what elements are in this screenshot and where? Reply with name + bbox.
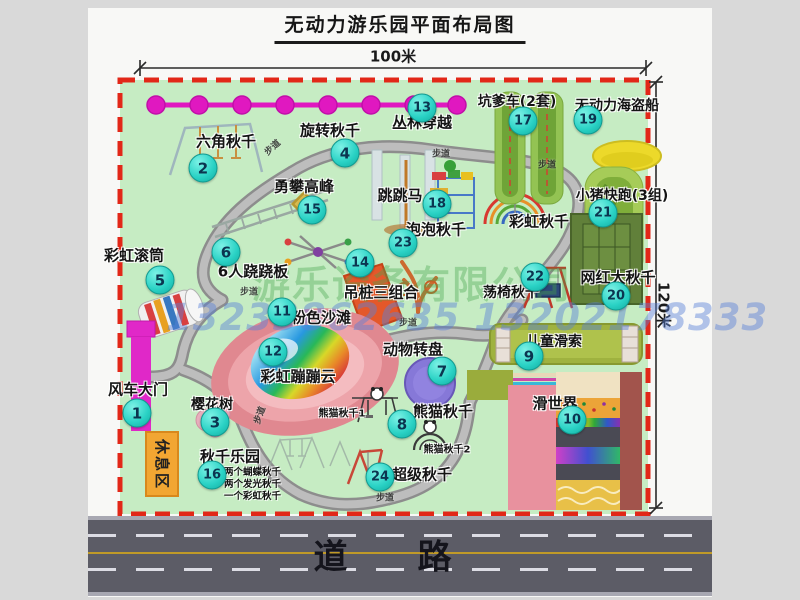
attraction-label-14: 吊桩三组合 — [343, 282, 418, 303]
playground-plan-map: 无动力游乐园平面布局图 — [0, 0, 800, 600]
attraction-badge-8: 8 — [388, 410, 417, 439]
attraction-badge-12: 12 — [259, 338, 288, 367]
attraction-badge-19: 19 — [574, 106, 603, 135]
walkway-label-2: 步道 — [432, 147, 450, 160]
attraction-label-21: 小猪快跑(3组) — [576, 185, 669, 205]
walkway-label-4: 步道 — [240, 285, 258, 298]
attraction-label-15: 勇攀高峰 — [274, 176, 334, 197]
attraction-badge-15: 15 — [298, 196, 327, 225]
attraction-badge-11: 11 — [268, 298, 297, 327]
attraction-label-4: 旋转秋千 — [300, 120, 360, 141]
attraction-badge-3: 3 — [201, 408, 230, 437]
attraction-badge-23: 23 — [389, 229, 418, 258]
rest-area-box: 休息区 — [145, 431, 179, 497]
road-edge-bottom — [88, 592, 712, 596]
attraction-badge-4: 4 — [331, 139, 360, 168]
attraction-badge-1: 1 — [123, 399, 152, 428]
walkway-label-7: 步道 — [376, 491, 394, 504]
attraction-badge-20: 20 — [602, 282, 631, 311]
attraction-badge-13: 13 — [408, 94, 437, 123]
attraction-badge-2: 2 — [189, 154, 218, 183]
attraction-badge-16: 16 — [198, 461, 227, 490]
rest-area-label: 休息区 — [152, 438, 173, 489]
attraction-badge-22: 22 — [521, 263, 550, 292]
walkway-label-3: 步道 — [538, 158, 556, 171]
attraction-badge-6: 6 — [212, 238, 241, 267]
extra-label-3: 熊猫秋千2 — [424, 441, 471, 456]
attraction-badge-24: 24 — [366, 463, 395, 492]
attraction-label-24: 超级秋千 — [392, 464, 452, 485]
attraction-label-5: 彩虹滚筒 — [104, 245, 164, 266]
extra-label-1: 彩虹秋千 — [509, 211, 569, 232]
attraction-label-18: 跳跳马 — [377, 185, 422, 206]
attraction-badge-14: 14 — [346, 249, 375, 278]
attraction-badge-5: 5 — [146, 266, 175, 295]
width-dimension-label: 100米 — [370, 46, 416, 67]
road-label: 道路 — [279, 530, 522, 579]
watermark-phone: 13233862635 13202178333 — [166, 296, 768, 339]
attraction-badge-7: 7 — [428, 357, 457, 386]
attraction-badge-21: 21 — [589, 199, 618, 228]
attraction-badge-18: 18 — [423, 190, 452, 219]
attraction-label-12: 彩虹蹦蹦云 — [260, 366, 335, 387]
attraction-label-1: 风车大门 — [108, 379, 168, 400]
attraction-badge-17: 17 — [509, 107, 538, 136]
walkway-label-6: 步道 — [399, 316, 417, 329]
pirate-ship-icon — [593, 141, 661, 171]
attraction-label-2: 六角秋千 — [196, 131, 256, 152]
map-title: 无动力游乐园平面布局图 — [274, 10, 525, 44]
extra-label-2: 熊猫秋千1 — [319, 405, 366, 420]
attraction-badge-9: 9 — [515, 342, 544, 371]
attraction-label-11: 粉色沙滩 — [291, 307, 351, 328]
attraction-label-7: 动物转盘 — [383, 339, 443, 360]
road: 道路 — [88, 516, 712, 596]
attraction-badge-10: 10 — [558, 406, 587, 435]
road-edge-top — [88, 516, 712, 520]
attraction-label-8: 熊猫秋千 — [413, 401, 473, 422]
swing-park-item-3: 一个彩虹秋千 — [224, 488, 281, 502]
